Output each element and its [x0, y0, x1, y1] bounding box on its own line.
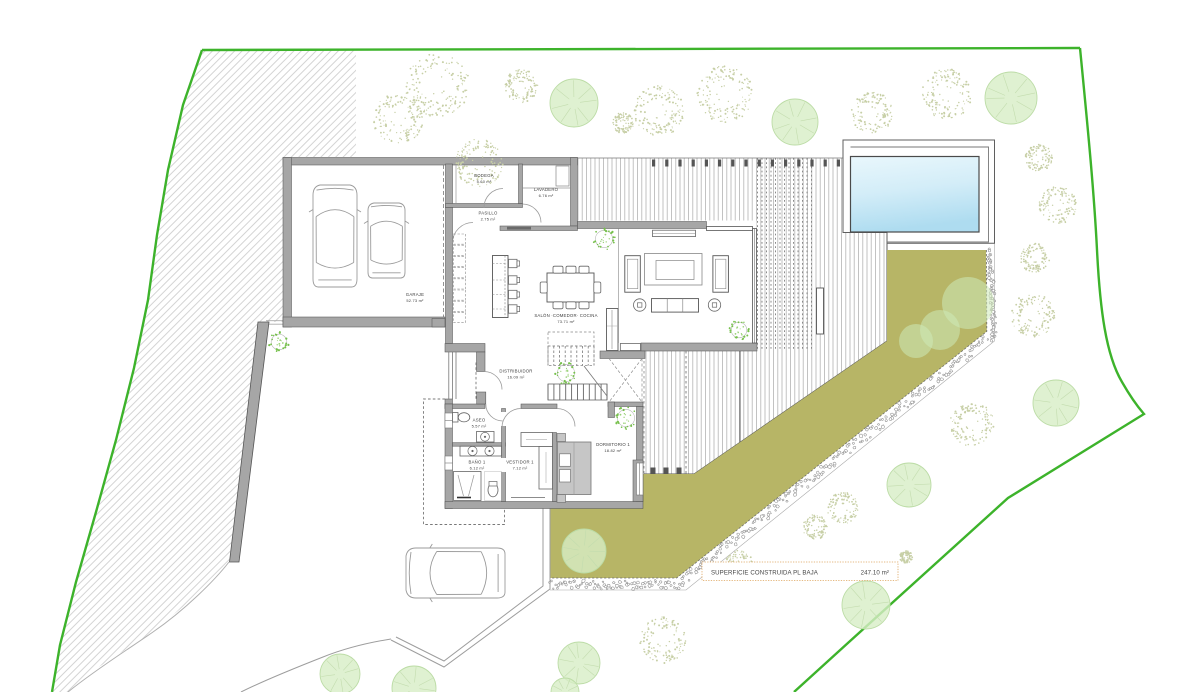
svg-text:BODEGA: BODEGA [474, 173, 494, 178]
svg-text:BAÑO 1: BAÑO 1 [469, 460, 486, 465]
svg-text:ASEO: ASEO [473, 418, 486, 423]
svg-text:SUPERFICIE CONSTRUIDA PL BAJA: SUPERFICIE CONSTRUIDA PL BAJA [711, 570, 819, 577]
svg-text:PASILLO: PASILLO [479, 211, 498, 216]
svg-text:18.82 m²: 18.82 m² [604, 448, 622, 453]
svg-text:73.71 m²: 73.71 m² [557, 319, 575, 324]
svg-text:6.76 m²: 6.76 m² [539, 193, 554, 198]
svg-text:LAVADERO: LAVADERO [534, 187, 559, 192]
svg-text:DISTRIBUIDOR: DISTRIBUIDOR [499, 369, 532, 374]
svg-text:6.12 m²: 6.12 m² [470, 466, 485, 471]
svg-text:SALÓN ·COMEDOR· COCINA: SALÓN ·COMEDOR· COCINA [534, 313, 597, 318]
svg-text:5.60 m²: 5.60 m² [477, 179, 492, 184]
svg-text:5.57 m²: 5.57 m² [472, 424, 487, 429]
svg-text:52.73 m²: 52.73 m² [406, 298, 424, 303]
svg-text:2.75 m²: 2.75 m² [481, 217, 496, 222]
svg-text:16.09 m²: 16.09 m² [507, 375, 525, 380]
svg-text:DORMITORIO 1: DORMITORIO 1 [596, 442, 630, 447]
svg-text:7.12 m²: 7.12 m² [513, 466, 528, 471]
svg-text:VESTIDOR 1: VESTIDOR 1 [506, 460, 534, 465]
svg-text:247.10 m²: 247.10 m² [861, 570, 889, 577]
svg-text:GARAJE: GARAJE [406, 292, 424, 297]
